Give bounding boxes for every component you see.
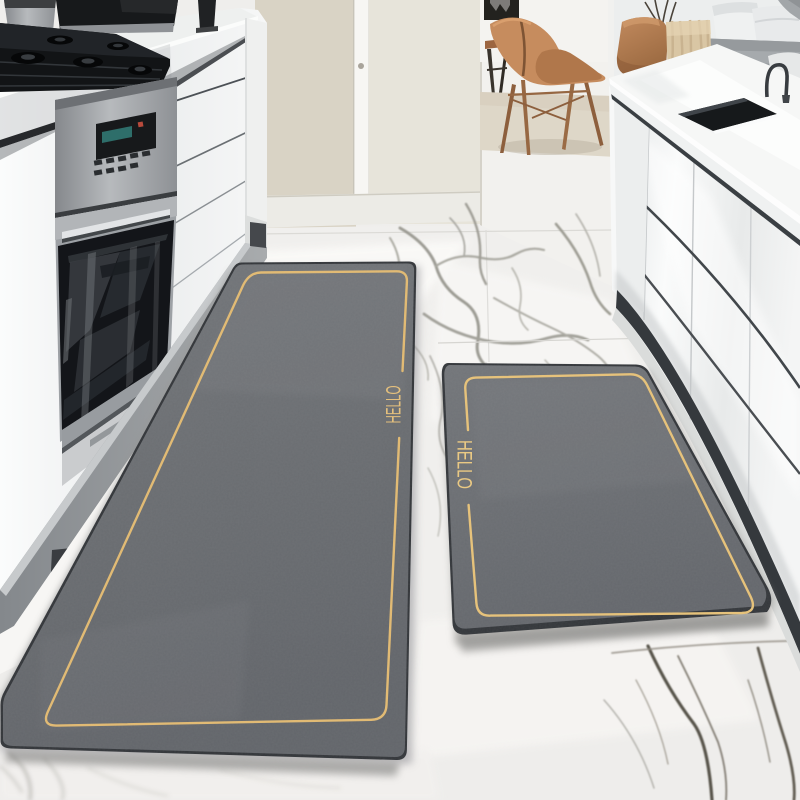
svg-text:HELLO: HELLO	[383, 386, 406, 424]
svg-text:HELLO: HELLO	[453, 440, 476, 489]
